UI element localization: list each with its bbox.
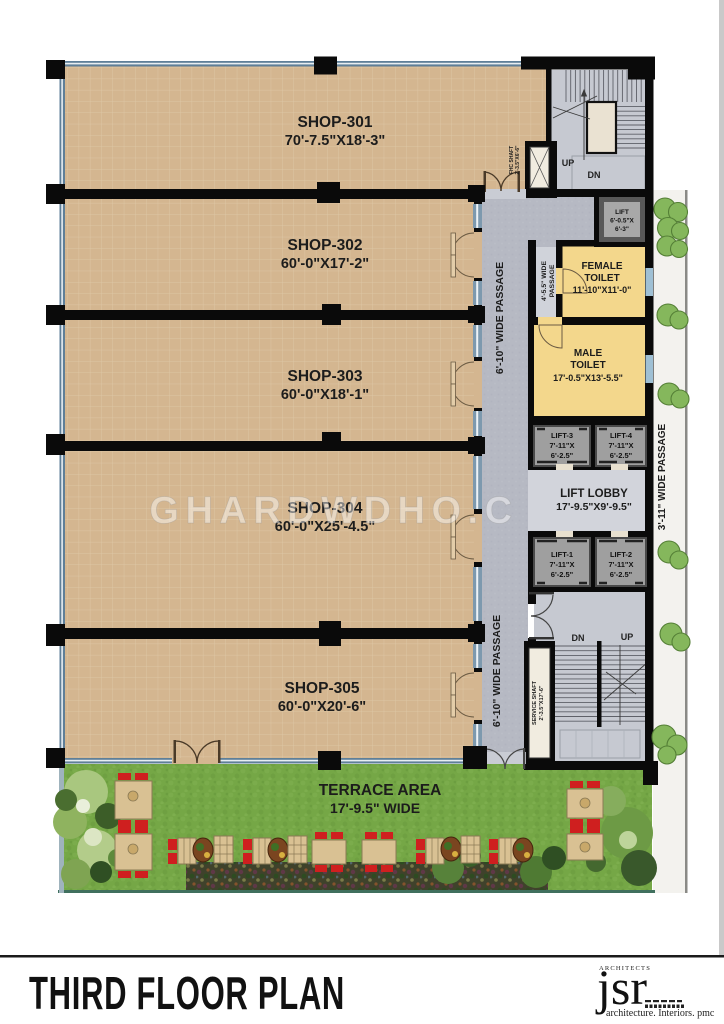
svg-text:SERVICE SHAFT: SERVICE SHAFT	[532, 680, 538, 725]
svg-text:7'-11"X: 7'-11"X	[609, 560, 634, 569]
svg-text:FEMALE: FEMALE	[581, 261, 622, 272]
svg-text:6'-10" WIDE PASSAGE: 6'-10" WIDE PASSAGE	[494, 262, 506, 374]
svg-text:60'-0"X17'-2": 60'-0"X17'-2"	[281, 256, 369, 272]
svg-text:60'-0"X18'-1": 60'-0"X18'-1"	[281, 387, 369, 403]
svg-text:LIFT-4: LIFT-4	[610, 431, 633, 440]
svg-text:jsr: jsr	[595, 959, 647, 1015]
svg-text:SHOP-302: SHOP-302	[288, 237, 363, 254]
svg-text:3'-11" WIDE PASSAGE: 3'-11" WIDE PASSAGE	[657, 423, 668, 530]
svg-text:17'-9.5"X9'-9.5": 17'-9.5"X9'-9.5"	[556, 501, 632, 513]
svg-text:SHOP-301: SHOP-301	[298, 114, 373, 131]
svg-text:SHOP-303: SHOP-303	[288, 368, 363, 385]
svg-text:SHOP-305: SHOP-305	[285, 680, 360, 697]
svg-text:60'-0"X20'-6": 60'-0"X20'-6"	[278, 699, 366, 715]
svg-text:7'-11"X: 7'-11"X	[609, 441, 634, 450]
svg-text:LIFT: LIFT	[615, 209, 629, 216]
svg-text:architecture. Interiors. pmc: architecture. Interiors. pmc	[606, 1008, 715, 1019]
svg-text:6'-2.5": 6'-2.5"	[551, 570, 574, 579]
svg-text:LIFT LOBBY: LIFT LOBBY	[560, 488, 628, 500]
svg-text:70'-7.5"X18'-3": 70'-7.5"X18'-3"	[285, 133, 385, 149]
svg-text:MALE: MALE	[574, 348, 603, 359]
svg-text:6'-2.5": 6'-2.5"	[551, 451, 574, 460]
svg-text:6'-2.5": 6'-2.5"	[610, 570, 633, 579]
svg-text:GHARDWDHO.C: GHARDWDHO.C	[149, 490, 518, 532]
svg-text:UP: UP	[562, 158, 575, 168]
svg-text:6'-10" WIDE PASSAGE: 6'-10" WIDE PASSAGE	[491, 615, 503, 727]
svg-text:2'-3.5"X6'-6": 2'-3.5"X6'-6"	[515, 145, 521, 175]
svg-text:6'-3": 6'-3"	[615, 226, 629, 233]
svg-text:THIRD FLOOR PLAN: THIRD FLOOR PLAN	[29, 968, 345, 1020]
svg-text:2'-3.5"X17'-6": 2'-3.5"X17'-6"	[539, 685, 545, 720]
svg-text:6'-2.5": 6'-2.5"	[610, 451, 633, 460]
svg-text:LIFT-3: LIFT-3	[551, 431, 573, 440]
svg-text:7'-11"X: 7'-11"X	[550, 441, 575, 450]
svg-text:6'-0.5"X: 6'-0.5"X	[610, 218, 634, 225]
svg-text:LIFT-1: LIFT-1	[551, 550, 573, 559]
svg-text:TOILET: TOILET	[570, 360, 605, 371]
svg-text:17'-9.5" WIDE: 17'-9.5" WIDE	[330, 800, 420, 816]
svg-text:UP: UP	[621, 632, 634, 642]
svg-text:DN: DN	[572, 633, 585, 643]
svg-text:7'-11"X: 7'-11"X	[550, 560, 575, 569]
svg-text:LIFT-2: LIFT-2	[610, 550, 632, 559]
svg-text:TOILET: TOILET	[584, 273, 619, 284]
svg-text:PASSAGE: PASSAGE	[549, 264, 556, 297]
svg-text:TERRACE AREA: TERRACE AREA	[319, 782, 442, 799]
svg-text:DN: DN	[588, 170, 601, 180]
svg-text:11'-10"X11'-0": 11'-10"X11'-0"	[573, 285, 632, 295]
svg-text:4'-5.5" WIDE: 4'-5.5" WIDE	[541, 261, 548, 301]
svg-text:17'-0.5"X13'-5.5": 17'-0.5"X13'-5.5"	[553, 373, 623, 383]
